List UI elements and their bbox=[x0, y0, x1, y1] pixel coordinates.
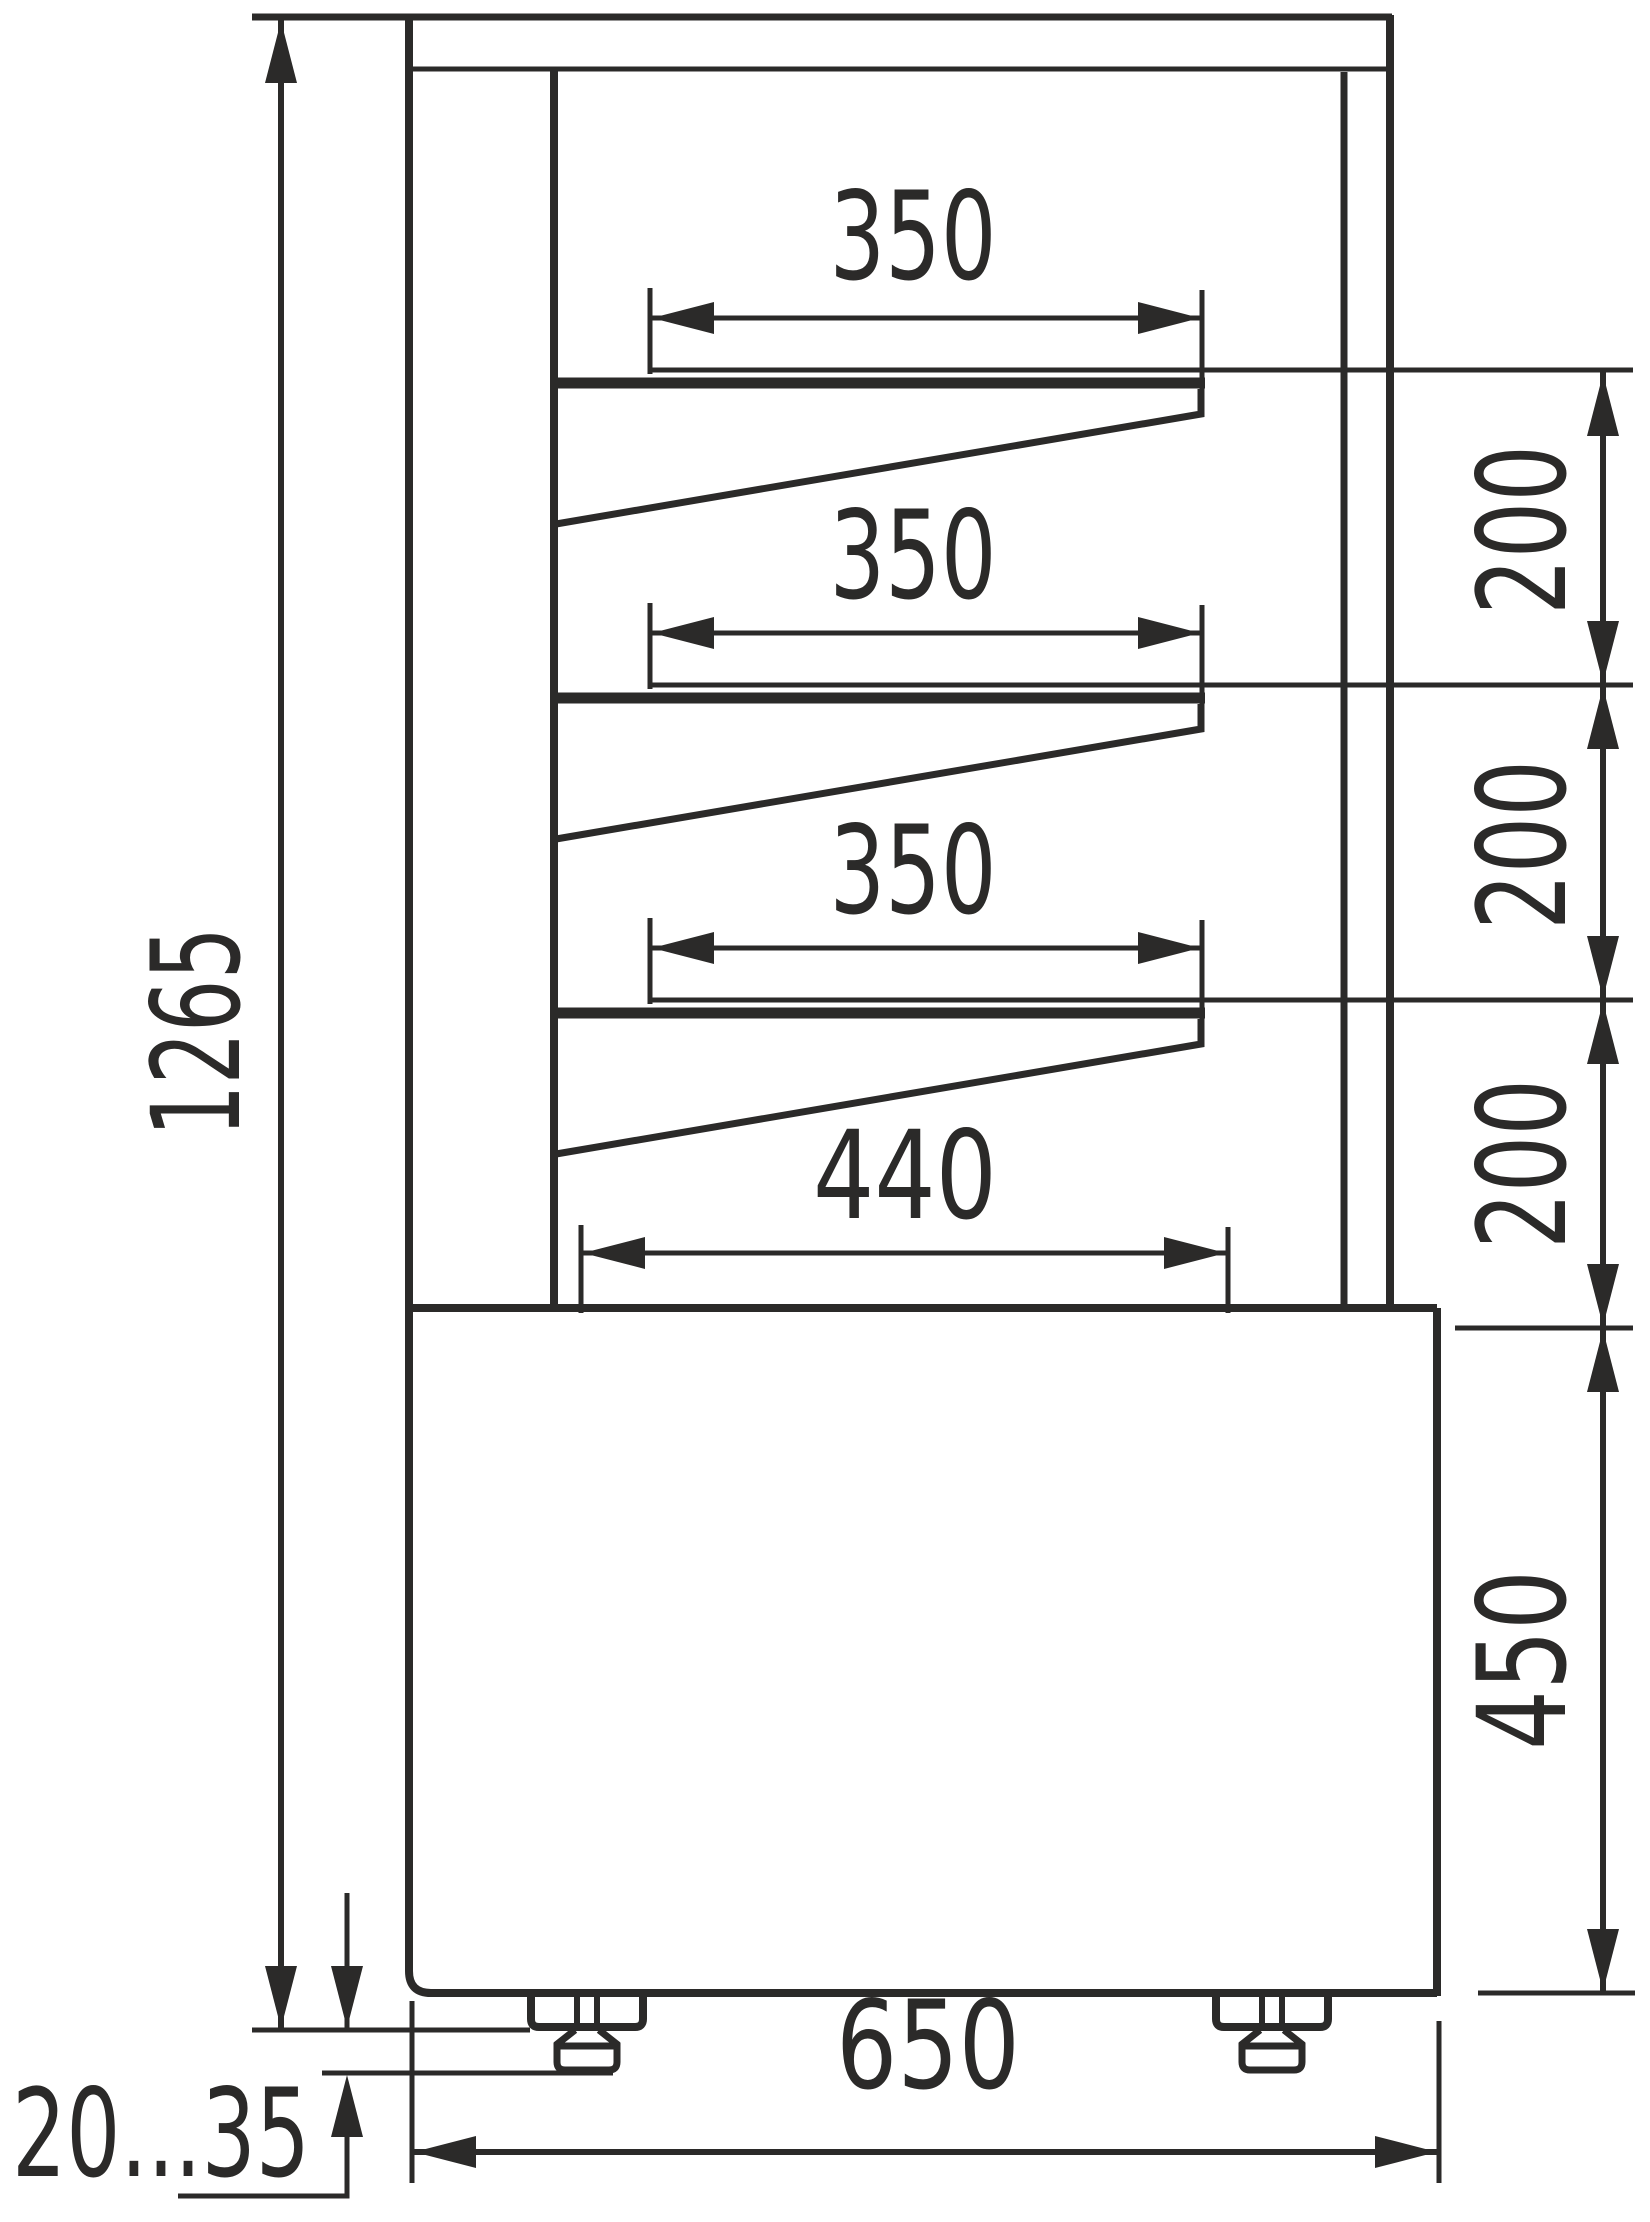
dim-arrowhead bbox=[1587, 1929, 1619, 1991]
left-foot bbox=[531, 1993, 643, 2070]
dim-arrowhead bbox=[1138, 932, 1200, 964]
dim-arrowhead bbox=[583, 1237, 645, 1269]
dim-shelf-depth-1-label: 350 bbox=[830, 166, 997, 308]
dim-overall-height-label: 1265 bbox=[126, 927, 268, 1137]
right-foot bbox=[1216, 1993, 1328, 2070]
dim-arrowhead bbox=[1587, 374, 1619, 436]
dim-arrowhead bbox=[331, 2075, 363, 2137]
dim-shelf-spacing-2-label: 200 bbox=[1452, 760, 1594, 930]
dim-arrowhead bbox=[265, 21, 297, 83]
dim-shelf-spacing-1-label: 200 bbox=[1452, 445, 1594, 615]
dim-arrowhead bbox=[1138, 617, 1200, 649]
display-case-dimension-drawing: 1265 350 350 350 440 bbox=[0, 0, 1650, 2218]
dim-shelf-depth-3-label: 350 bbox=[830, 800, 997, 942]
dim-arrowhead bbox=[1587, 621, 1619, 683]
dim-arrowhead bbox=[1587, 936, 1619, 998]
dim-arrowhead bbox=[1138, 302, 1200, 334]
cabinet-outline bbox=[252, 15, 1437, 1996]
left-foot-mount-plate bbox=[531, 1993, 643, 2027]
dim-arrowhead bbox=[1164, 1237, 1226, 1269]
dim-overall-depth-label: 650 bbox=[836, 1975, 1020, 2117]
right-foot-mount-plate bbox=[1216, 1993, 1328, 2027]
dim-arrowhead bbox=[1587, 687, 1619, 749]
dim-overall-height: 1265 bbox=[126, 20, 530, 2030]
dim-arrowhead bbox=[652, 932, 714, 964]
dim-arrowhead bbox=[652, 302, 714, 334]
dim-shelf-depth-3: 350 bbox=[650, 800, 1202, 1044]
dim-arrowhead bbox=[1587, 1264, 1619, 1326]
dim-arrowhead bbox=[414, 2136, 476, 2168]
right-foot-pad bbox=[1242, 2046, 1302, 2070]
dim-arrowhead bbox=[1587, 1330, 1619, 1392]
technical-drawing-page: 1265 350 350 350 440 bbox=[0, 0, 1650, 2218]
dim-arrowhead bbox=[1587, 1002, 1619, 1064]
dim-shelf-depth-2-label: 350 bbox=[830, 485, 997, 627]
dim-shelf-spacing-3-label: 200 bbox=[1452, 1079, 1594, 1249]
dim-base-height-label: 450 bbox=[1452, 1570, 1594, 1750]
dim-arrowhead bbox=[652, 617, 714, 649]
dim-shelf-depth-2: 350 bbox=[650, 485, 1202, 729]
dim-right-chain: 200 200 200 450 bbox=[1452, 372, 1635, 1993]
dim-shelf-depth-1: 350 bbox=[650, 166, 1202, 414]
dim-bottom-shelf-depth-label: 440 bbox=[813, 1105, 997, 1247]
dim-foot-adjustment: 20...35 bbox=[12, 1893, 613, 2205]
left-foot-screw bbox=[577, 1993, 597, 2027]
dim-arrowhead bbox=[331, 1966, 363, 2028]
left-foot-pad bbox=[557, 2046, 617, 2070]
cabinet-left-wall-and-base-bottom bbox=[409, 15, 1437, 1993]
dim-arrowhead bbox=[1375, 2136, 1437, 2168]
dim-arrowhead bbox=[265, 1966, 297, 2028]
dim-foot-adjustment-label: 20...35 bbox=[12, 2063, 310, 2205]
right-foot-screw bbox=[1262, 1993, 1282, 2027]
